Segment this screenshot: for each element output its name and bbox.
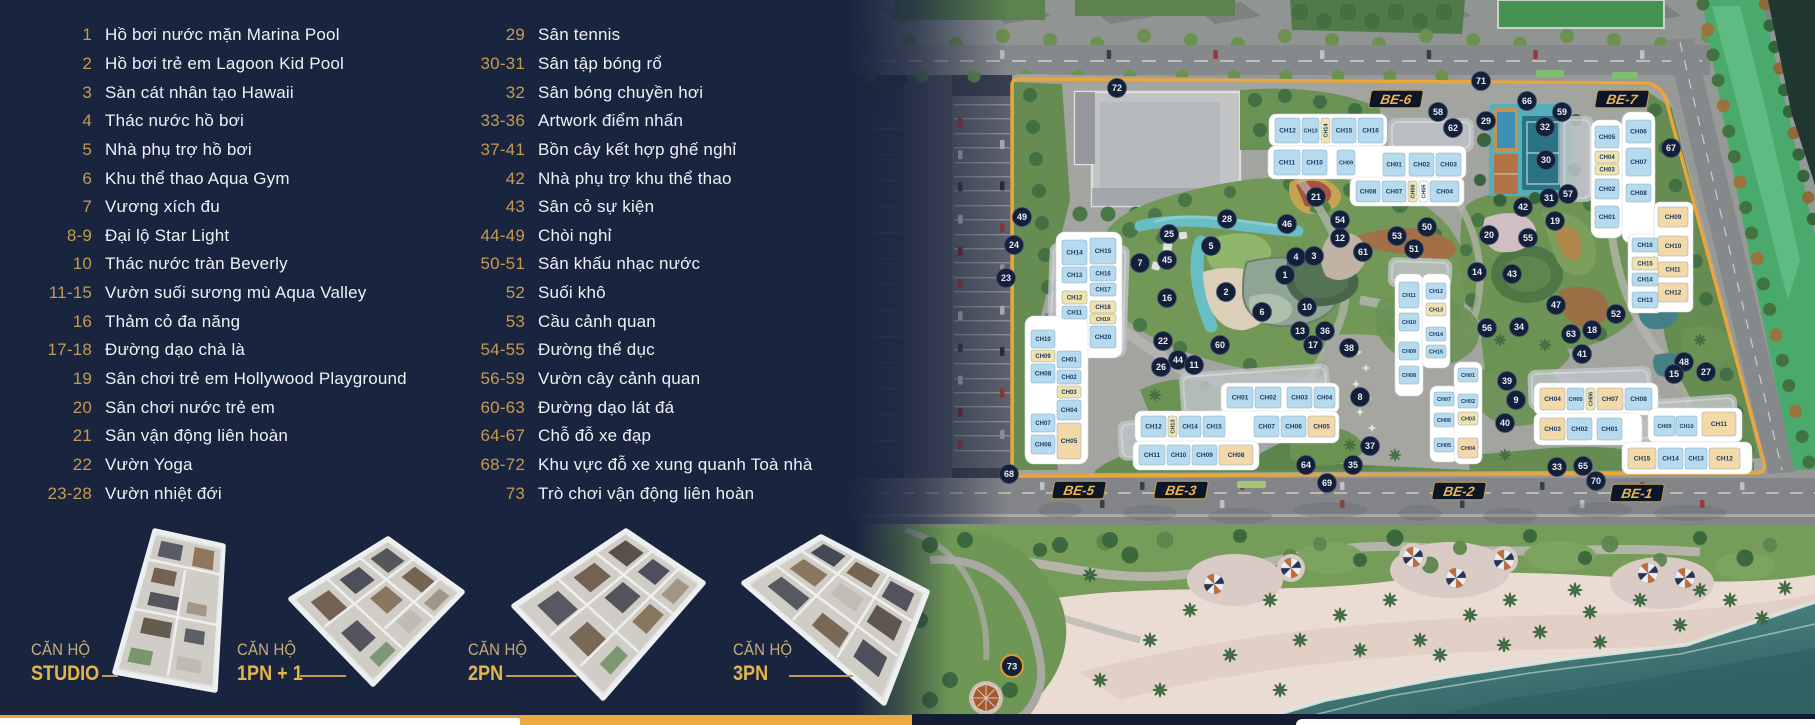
svg-text:17: 17 [1308, 340, 1318, 350]
svg-text:CH11: CH11 [1711, 421, 1728, 428]
svg-text:69: 69 [1322, 478, 1332, 488]
svg-text:CH13: CH13 [1429, 308, 1443, 314]
svg-text:CH17: CH17 [1095, 288, 1111, 294]
svg-text:2: 2 [1223, 287, 1228, 297]
svg-text:34: 34 [1514, 322, 1524, 332]
svg-text:CH08: CH08 [1630, 396, 1647, 403]
svg-text:37: 37 [1365, 441, 1375, 451]
svg-text:59: 59 [1557, 107, 1567, 117]
svg-text:CH07: CH07 [1437, 397, 1451, 403]
svg-text:12: 12 [1335, 233, 1345, 243]
svg-text:CH14: CH14 [1637, 278, 1653, 284]
svg-text:27: 27 [1701, 367, 1711, 377]
svg-text:CH20: CH20 [1095, 334, 1112, 341]
svg-text:CH07: CH07 [1035, 421, 1051, 427]
svg-text:29: 29 [1481, 116, 1491, 126]
svg-text:CH03: CH03 [1461, 417, 1475, 423]
svg-text:60: 60 [1215, 340, 1225, 350]
svg-text:CH04: CH04 [1599, 155, 1615, 161]
svg-text:3: 3 [1311, 251, 1316, 261]
svg-text:39: 39 [1502, 376, 1512, 386]
svg-text:CH08: CH08 [1035, 371, 1052, 378]
svg-text:CH06: CH06 [1035, 442, 1052, 449]
svg-text:55: 55 [1523, 233, 1533, 243]
svg-text:35: 35 [1348, 460, 1358, 470]
svg-text:CH05: CH05 [1061, 438, 1078, 445]
svg-text:CH15: CH15 [1429, 350, 1443, 356]
svg-text:CH16: CH16 [1362, 128, 1379, 135]
svg-text:CH15: CH15 [1637, 262, 1653, 268]
svg-text:CH03: CH03 [1440, 162, 1457, 169]
svg-text:CH09: CH09 [1665, 214, 1682, 221]
svg-text:62: 62 [1448, 123, 1458, 133]
svg-text:5: 5 [1208, 241, 1213, 251]
svg-text:CH15: CH15 [1336, 128, 1353, 135]
svg-text:41: 41 [1577, 349, 1587, 359]
svg-text:CH14: CH14 [1066, 250, 1083, 257]
svg-text:CH19: CH19 [1096, 317, 1110, 323]
svg-text:CH09: CH09 [1035, 354, 1051, 360]
svg-text:CH02: CH02 [1571, 426, 1588, 433]
svg-text:CH18: CH18 [1095, 305, 1111, 311]
svg-text:CH09: CH09 [1196, 452, 1213, 459]
svg-text:CH02: CH02 [1413, 162, 1430, 169]
svg-text:64: 64 [1301, 460, 1311, 470]
svg-text:BE-5: BE-5 [1062, 483, 1096, 498]
svg-text:14: 14 [1472, 267, 1482, 277]
svg-text:38: 38 [1344, 343, 1354, 353]
svg-text:31: 31 [1544, 193, 1554, 203]
svg-text:CH03: CH03 [1291, 395, 1308, 402]
svg-text:43: 43 [1507, 269, 1517, 279]
svg-text:CH06: CH06 [1589, 392, 1595, 406]
svg-text:CH14: CH14 [1662, 456, 1679, 463]
svg-text:CH09: CH09 [1402, 349, 1416, 355]
svg-text:BE-6: BE-6 [1379, 92, 1413, 107]
svg-text:58: 58 [1433, 107, 1443, 117]
svg-text:CH05: CH05 [1422, 184, 1428, 198]
svg-text:CH11: CH11 [1067, 311, 1083, 317]
svg-text:CH04: CH04 [1436, 189, 1453, 196]
svg-text:CH07: CH07 [1630, 159, 1647, 166]
svg-text:CH10: CH10 [1171, 453, 1187, 459]
svg-text:CH15: CH15 [1206, 425, 1222, 431]
svg-text:CH15: CH15 [1095, 248, 1112, 255]
svg-text:CH05: CH05 [1437, 443, 1451, 449]
svg-text:21: 21 [1311, 192, 1321, 202]
svg-text:7: 7 [1137, 258, 1142, 268]
svg-text:CH02: CH02 [1260, 395, 1277, 402]
svg-text:CH06: CH06 [1630, 129, 1647, 136]
svg-text:CH10: CH10 [1306, 160, 1323, 167]
svg-text:70: 70 [1591, 476, 1601, 486]
svg-text:CH10: CH10 [1665, 243, 1682, 250]
svg-text:44: 44 [1173, 355, 1183, 365]
svg-text:CH08: CH08 [1402, 373, 1416, 379]
svg-text:73: 73 [1007, 661, 1018, 672]
svg-text:CH05: CH05 [1568, 397, 1582, 403]
svg-text:CH12: CH12 [1665, 290, 1682, 297]
svg-text:BE-3: BE-3 [1164, 483, 1198, 498]
svg-text:CH07: CH07 [1258, 424, 1275, 431]
svg-text:71: 71 [1476, 76, 1486, 86]
svg-text:6: 6 [1259, 307, 1264, 317]
svg-text:CH03: CH03 [1544, 426, 1561, 433]
svg-text:CH02: CH02 [1461, 399, 1475, 405]
svg-text:48: 48 [1679, 357, 1689, 367]
svg-text:24: 24 [1009, 240, 1019, 250]
svg-text:22: 22 [1158, 336, 1168, 346]
svg-text:CH16: CH16 [1637, 243, 1653, 249]
svg-text:CH06: CH06 [1285, 424, 1302, 431]
svg-text:CH13: CH13 [1171, 419, 1177, 433]
svg-text:CH14: CH14 [1324, 123, 1330, 138]
svg-text:CH11: CH11 [1402, 293, 1416, 299]
svg-text:CH06: CH06 [1437, 418, 1451, 424]
svg-text:56: 56 [1482, 323, 1492, 333]
svg-text:10: 10 [1302, 302, 1312, 312]
svg-text:61: 61 [1358, 247, 1368, 257]
svg-text:8: 8 [1357, 392, 1362, 402]
svg-text:51: 51 [1409, 244, 1419, 254]
svg-text:CH01: CH01 [1061, 358, 1077, 364]
svg-text:CH13: CH13 [1688, 457, 1704, 463]
svg-text:20: 20 [1484, 230, 1494, 240]
svg-text:CH03: CH03 [1061, 390, 1077, 396]
svg-text:CH01: CH01 [1601, 426, 1618, 433]
svg-text:BE-7: BE-7 [1605, 92, 1640, 107]
svg-text:45: 45 [1162, 255, 1172, 265]
svg-text:BE-1: BE-1 [1620, 486, 1653, 501]
svg-text:CH12: CH12 [1145, 424, 1162, 431]
svg-text:CH01: CH01 [1599, 214, 1616, 221]
svg-text:CH12: CH12 [1067, 296, 1083, 302]
svg-text:72: 72 [1112, 83, 1122, 93]
svg-text:65: 65 [1578, 461, 1588, 471]
svg-text:CH14: CH14 [1182, 425, 1198, 431]
svg-text:CH12: CH12 [1716, 456, 1733, 463]
svg-text:63: 63 [1566, 329, 1576, 339]
svg-text:CH01: CH01 [1232, 395, 1249, 402]
svg-text:9: 9 [1513, 395, 1518, 405]
svg-text:CH14: CH14 [1429, 332, 1444, 338]
svg-text:53: 53 [1392, 231, 1402, 241]
svg-text:CH11: CH11 [1144, 452, 1161, 459]
svg-text:CH11: CH11 [1279, 160, 1296, 167]
svg-text:CH02: CH02 [1599, 186, 1616, 193]
svg-text:49: 49 [1017, 212, 1027, 222]
svg-text:46: 46 [1282, 219, 1292, 229]
svg-text:26: 26 [1156, 362, 1166, 372]
svg-text:CH01: CH01 [1386, 163, 1402, 169]
svg-text:CH10: CH10 [1035, 337, 1051, 343]
svg-text:CH08: CH08 [1630, 190, 1647, 197]
svg-text:47: 47 [1551, 300, 1561, 310]
svg-text:52: 52 [1611, 309, 1621, 319]
svg-text:15: 15 [1669, 369, 1679, 379]
svg-text:CH06: CH06 [1411, 184, 1417, 198]
svg-text:CH05: CH05 [1313, 424, 1330, 431]
svg-text:67: 67 [1666, 143, 1676, 153]
svg-text:CH15: CH15 [1634, 456, 1651, 463]
svg-text:32: 32 [1540, 122, 1550, 132]
svg-text:33: 33 [1552, 462, 1562, 472]
svg-text:11: 11 [1189, 360, 1199, 370]
svg-text:36: 36 [1320, 326, 1330, 336]
svg-text:19: 19 [1550, 216, 1560, 226]
svg-text:28: 28 [1222, 214, 1232, 224]
svg-text:CH09: CH09 [1339, 161, 1353, 167]
svg-text:CH11: CH11 [1665, 268, 1681, 274]
svg-text:CH13: CH13 [1303, 129, 1317, 135]
svg-text:18: 18 [1587, 325, 1597, 335]
svg-text:CH16: CH16 [1095, 272, 1111, 278]
svg-text:16: 16 [1162, 293, 1172, 303]
svg-text:CH01: CH01 [1461, 373, 1475, 379]
svg-text:25: 25 [1164, 229, 1174, 239]
svg-text:30: 30 [1541, 155, 1551, 165]
svg-text:57: 57 [1563, 189, 1573, 199]
svg-text:4: 4 [1293, 252, 1298, 262]
svg-text:CH10: CH10 [1679, 424, 1693, 430]
svg-text:CH12: CH12 [1429, 289, 1443, 295]
svg-text:54: 54 [1335, 215, 1345, 225]
svg-text:CH04: CH04 [1461, 446, 1476, 452]
svg-text:CH04: CH04 [1061, 407, 1078, 414]
svg-text:CH05: CH05 [1599, 134, 1616, 141]
svg-text:CH08: CH08 [1360, 189, 1377, 196]
svg-text:CH09: CH09 [1657, 424, 1671, 430]
svg-text:CH04: CH04 [1544, 396, 1561, 403]
svg-text:CH12: CH12 [1279, 128, 1296, 135]
svg-text:BE-2: BE-2 [1442, 484, 1476, 499]
svg-text:50: 50 [1422, 222, 1432, 232]
svg-text:CH13: CH13 [1067, 273, 1083, 279]
svg-text:66: 66 [1522, 96, 1532, 106]
svg-text:CH13: CH13 [1637, 298, 1653, 304]
svg-text:CH08: CH08 [1228, 452, 1245, 459]
svg-text:40: 40 [1500, 418, 1510, 428]
svg-text:13: 13 [1295, 326, 1305, 336]
svg-text:1: 1 [1282, 270, 1287, 280]
svg-text:CH02: CH02 [1061, 375, 1077, 381]
svg-text:CH10: CH10 [1402, 320, 1416, 326]
svg-text:CH07: CH07 [1386, 189, 1403, 196]
svg-text:42: 42 [1518, 202, 1528, 212]
svg-text:CH04: CH04 [1317, 396, 1333, 402]
svg-text:CH07: CH07 [1602, 396, 1619, 403]
svg-text:CH03: CH03 [1599, 168, 1615, 174]
